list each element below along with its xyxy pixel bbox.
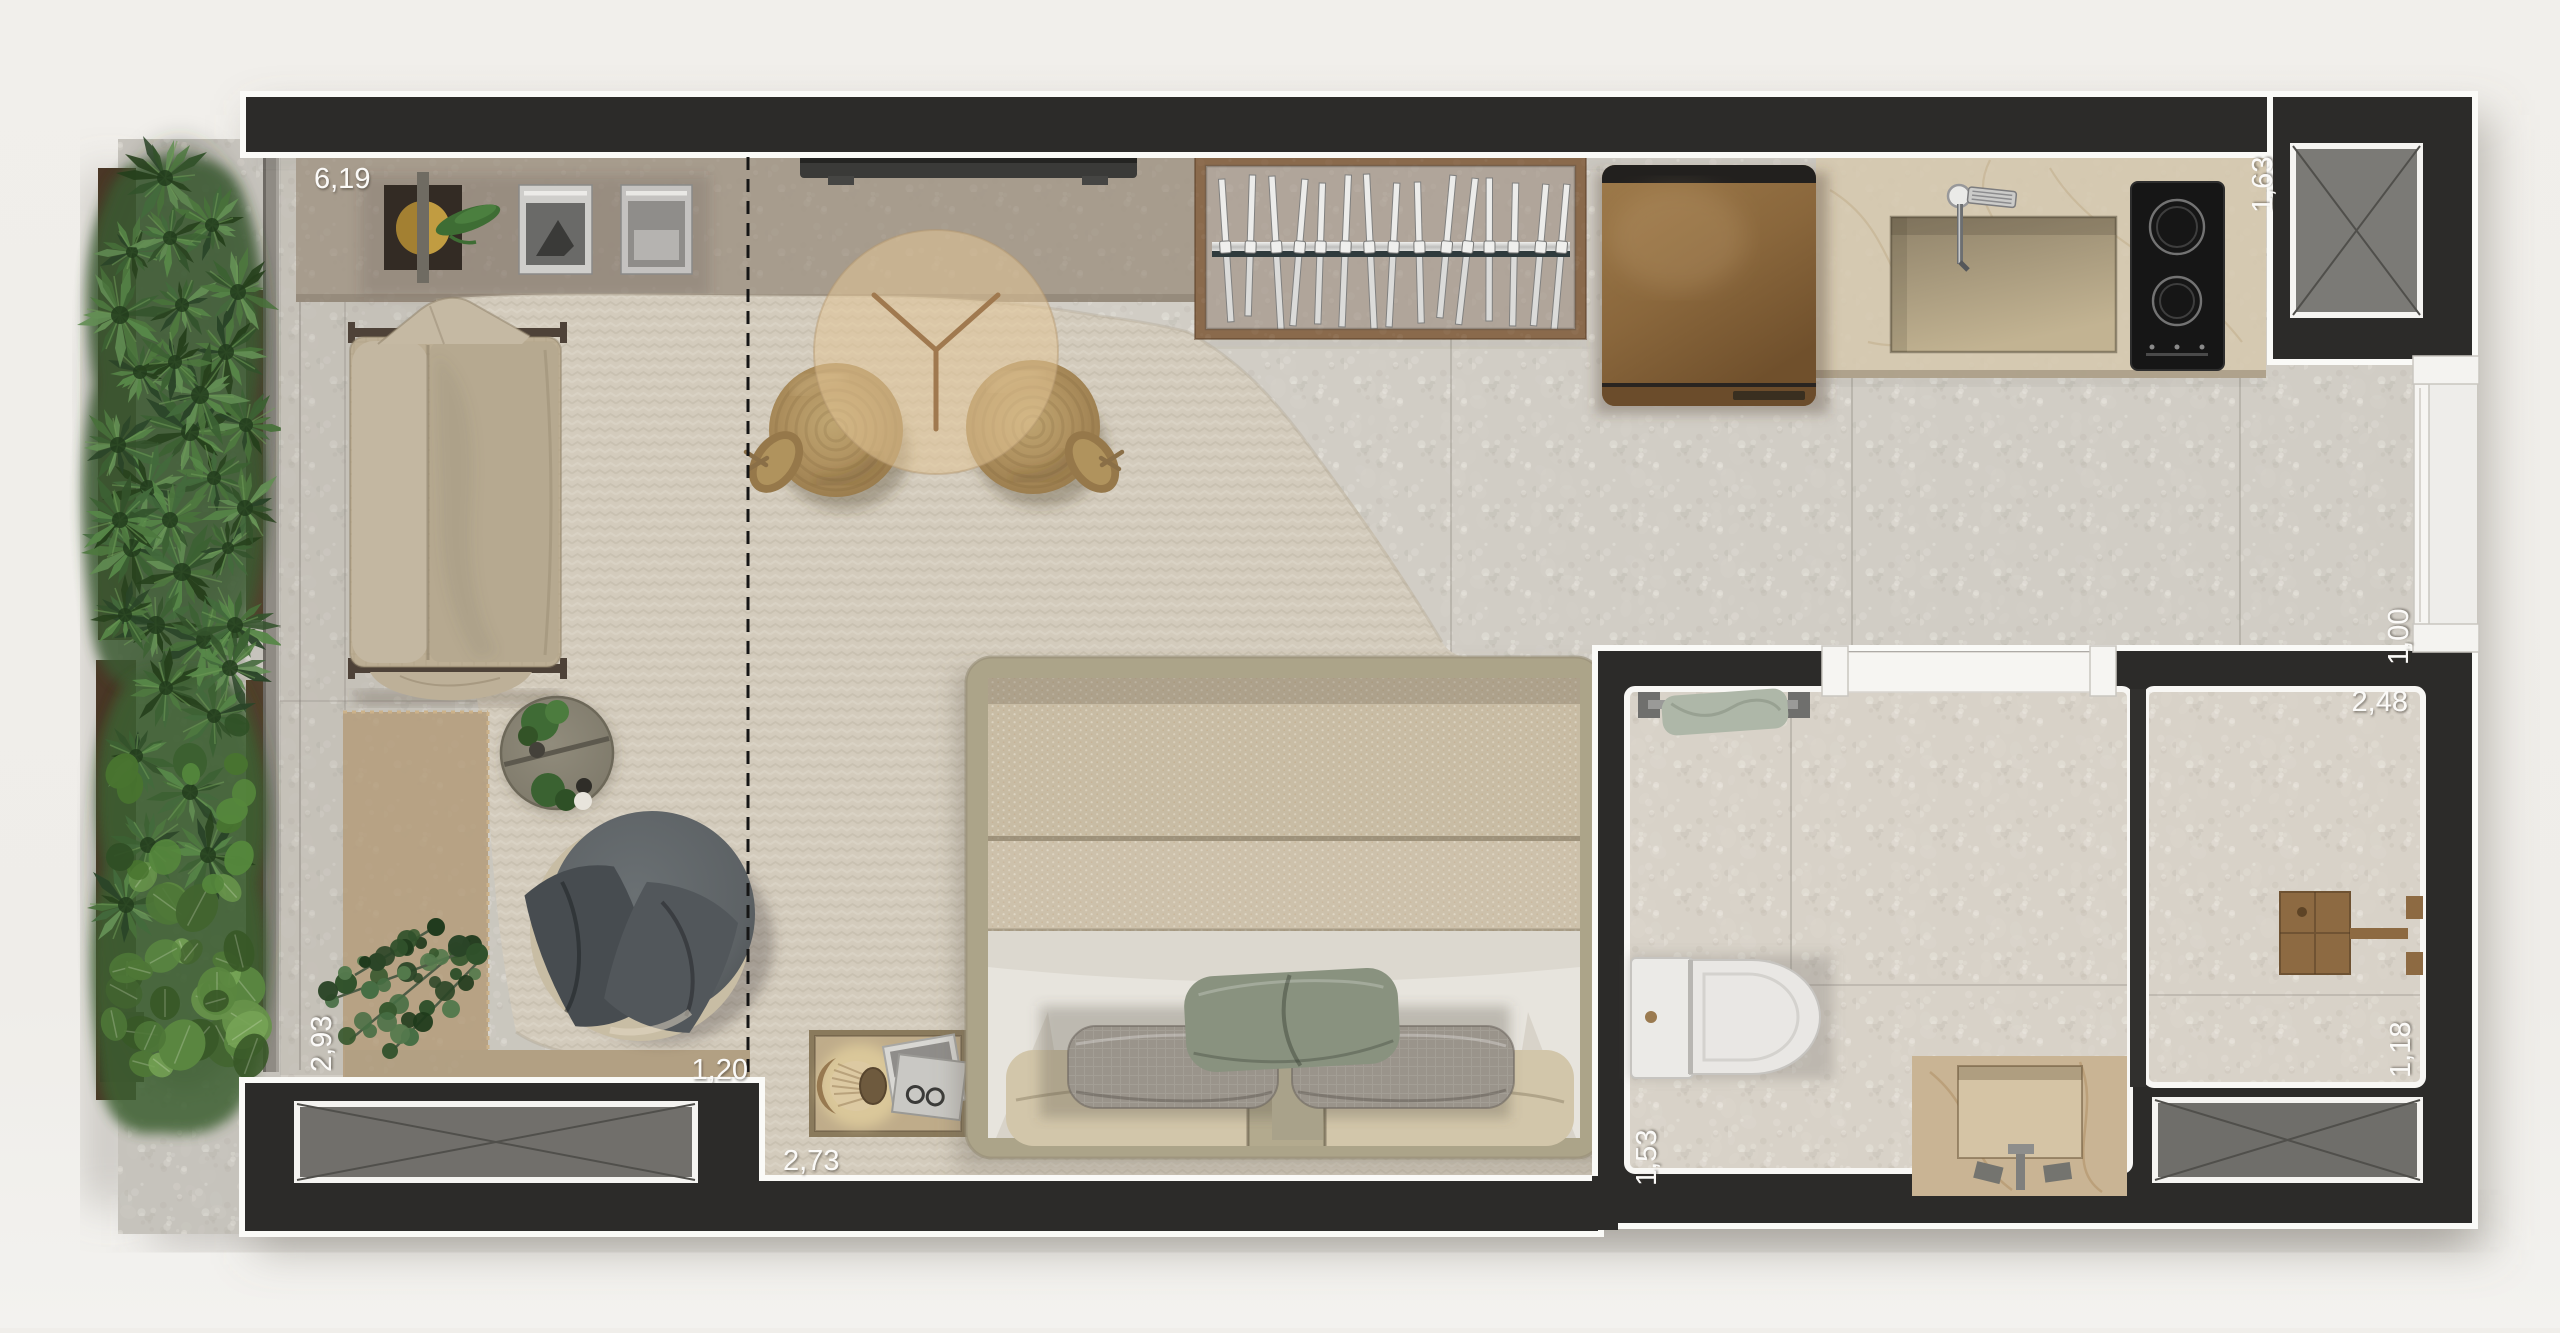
svg-text:1,00: 1,00 — [2383, 609, 2415, 665]
svg-text:1,63: 1,63 — [2247, 157, 2279, 213]
svg-text:2,48: 2,48 — [2352, 686, 2408, 718]
svg-text:1,20: 1,20 — [692, 1054, 748, 1086]
svg-text:1,53: 1,53 — [1631, 1130, 1663, 1186]
svg-text:2,73: 2,73 — [783, 1145, 839, 1177]
svg-text:1,18: 1,18 — [2385, 1022, 2417, 1078]
svg-text:6,19: 6,19 — [314, 163, 370, 195]
svg-text:2,93: 2,93 — [306, 1016, 338, 1072]
